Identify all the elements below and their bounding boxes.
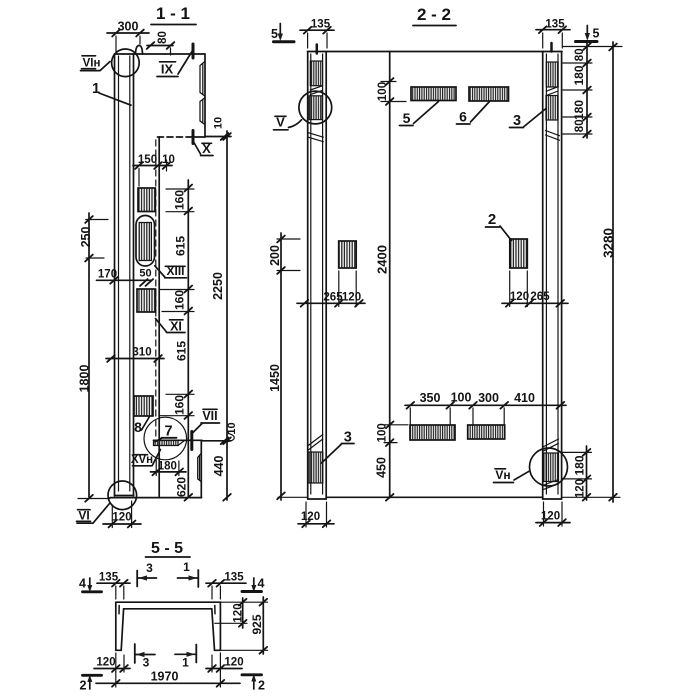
svg-text:100: 100: [377, 82, 389, 101]
svg-text:1: 1: [182, 656, 189, 670]
svg-text:120: 120: [224, 657, 243, 669]
svg-text:160: 160: [173, 395, 187, 415]
svg-text:100: 100: [451, 391, 472, 405]
svg-text:180: 180: [572, 100, 586, 120]
svg-text:135: 135: [224, 572, 244, 584]
svg-text:135: 135: [545, 18, 565, 30]
svg-text:265: 265: [323, 292, 343, 304]
svg-text:4: 4: [258, 577, 265, 591]
svg-text:100: 100: [377, 423, 389, 442]
svg-text:80: 80: [574, 48, 586, 61]
svg-text:265: 265: [530, 291, 550, 303]
svg-text:50: 50: [139, 268, 151, 280]
svg-text:1800: 1800: [78, 365, 92, 393]
svg-text:120: 120: [301, 511, 320, 523]
svg-text:Vн: Vн: [495, 468, 510, 482]
svg-text:2400: 2400: [375, 245, 390, 274]
svg-text:10: 10: [162, 154, 175, 166]
svg-text:1: 1: [92, 81, 100, 97]
svg-text:2250: 2250: [211, 272, 225, 300]
svg-text:6: 6: [459, 109, 467, 125]
svg-text:VII: VII: [202, 409, 217, 423]
svg-text:IX: IX: [161, 62, 174, 77]
svg-text:450: 450: [375, 457, 389, 478]
svg-text:120: 120: [112, 512, 131, 524]
svg-text:VI: VI: [78, 509, 89, 523]
svg-text:5: 5: [593, 27, 600, 41]
svg-text:3280: 3280: [601, 228, 616, 258]
svg-text:2 - 2: 2 - 2: [417, 5, 451, 24]
svg-text:350: 350: [420, 391, 441, 405]
svg-text:5 - 5: 5 - 5: [151, 540, 183, 557]
svg-text:1 - 1: 1 - 1: [156, 4, 190, 23]
svg-text:615: 615: [174, 236, 188, 256]
svg-text:180: 180: [158, 461, 177, 473]
svg-text:440: 440: [212, 456, 226, 477]
svg-text:2: 2: [80, 679, 87, 693]
svg-text:2: 2: [258, 679, 265, 693]
svg-text:120: 120: [96, 657, 115, 669]
svg-text:1: 1: [183, 560, 190, 574]
svg-text:310: 310: [132, 347, 151, 359]
svg-text:2: 2: [488, 211, 496, 228]
svg-text:620: 620: [175, 477, 189, 497]
svg-text:5: 5: [271, 27, 278, 41]
svg-text:300: 300: [118, 20, 139, 34]
svg-text:3: 3: [143, 656, 150, 670]
svg-text:200: 200: [268, 245, 282, 266]
svg-text:XI: XI: [170, 320, 182, 334]
svg-text:120: 120: [541, 511, 560, 523]
svg-text:120: 120: [342, 292, 361, 304]
svg-text:180: 180: [572, 65, 586, 85]
svg-text:XVн: XVн: [131, 454, 153, 466]
svg-text:160: 160: [173, 290, 187, 310]
svg-text:615: 615: [175, 341, 189, 361]
svg-text:8: 8: [134, 419, 142, 435]
svg-text:135: 135: [99, 572, 119, 584]
svg-text:VIн: VIн: [83, 58, 101, 70]
svg-text:160: 160: [173, 190, 187, 210]
svg-text:5: 5: [403, 110, 411, 126]
svg-text:925: 925: [250, 614, 264, 634]
svg-text:3: 3: [146, 561, 153, 575]
svg-text:80: 80: [574, 119, 586, 132]
svg-text:120: 120: [575, 479, 587, 498]
svg-text:1970: 1970: [151, 670, 179, 684]
svg-text:180: 180: [573, 455, 587, 475]
svg-text:120: 120: [233, 603, 245, 622]
svg-text:150: 150: [138, 154, 157, 166]
svg-text:410: 410: [514, 391, 535, 405]
svg-text:300: 300: [478, 391, 499, 405]
svg-text:135: 135: [311, 19, 331, 31]
svg-text:10: 10: [213, 117, 225, 129]
svg-text:170: 170: [98, 269, 117, 281]
svg-text:1450: 1450: [268, 364, 282, 392]
svg-text:4: 4: [79, 577, 86, 591]
svg-text:80: 80: [157, 31, 169, 44]
svg-text:120: 120: [510, 291, 529, 303]
svg-text:250: 250: [79, 227, 93, 248]
